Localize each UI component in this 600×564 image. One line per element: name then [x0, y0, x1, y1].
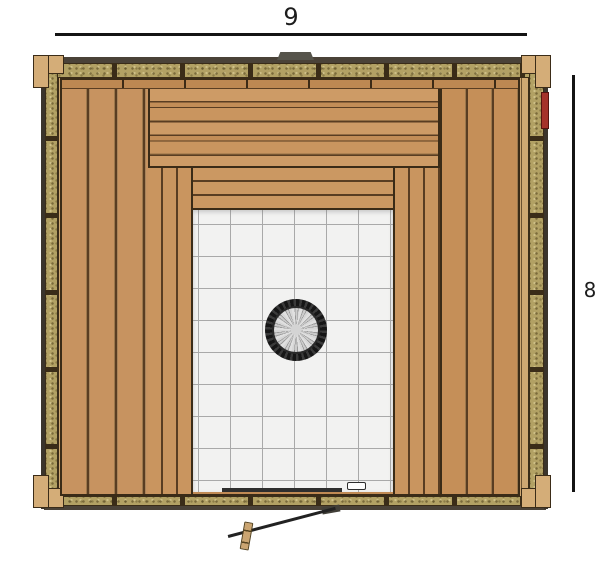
heater-stones [272, 306, 320, 354]
bottom-wall-outer-edge [44, 506, 546, 510]
top-wall-insulation [48, 63, 542, 78]
right-bench-step [393, 168, 440, 494]
floor-vent [347, 482, 366, 490]
back-bench-upper [148, 89, 440, 168]
tile-floor [193, 210, 393, 492]
left-bench [62, 89, 148, 494]
right-wall-insulation [529, 63, 544, 505]
sauna-interior [60, 78, 520, 496]
left-bench-step [148, 168, 193, 494]
sauna-floorplan-drawing: 9 8 [0, 0, 600, 564]
bottom-wall-insulation [48, 496, 542, 506]
back-bench-lower [193, 168, 393, 210]
left-wall-insulation [45, 63, 58, 505]
width-dimension-label: 9 [271, 4, 311, 30]
red-marker [541, 92, 549, 129]
corner-post-bottom-left-leg [33, 475, 49, 508]
corner-post-top-left-leg [33, 55, 49, 88]
door-threshold [222, 488, 342, 492]
depth-dimension-line [572, 75, 575, 492]
depth-dimension-label: 8 [577, 279, 600, 301]
width-dimension-line [55, 33, 527, 36]
stone-heater [265, 299, 327, 361]
right-bench [440, 89, 518, 494]
door-handle [240, 521, 254, 550]
corner-post-top-right-leg [535, 55, 551, 88]
corner-post-bottom-right-leg [535, 475, 551, 508]
back-wall-edge-board [62, 80, 518, 89]
roof-vent-tab [277, 52, 314, 60]
